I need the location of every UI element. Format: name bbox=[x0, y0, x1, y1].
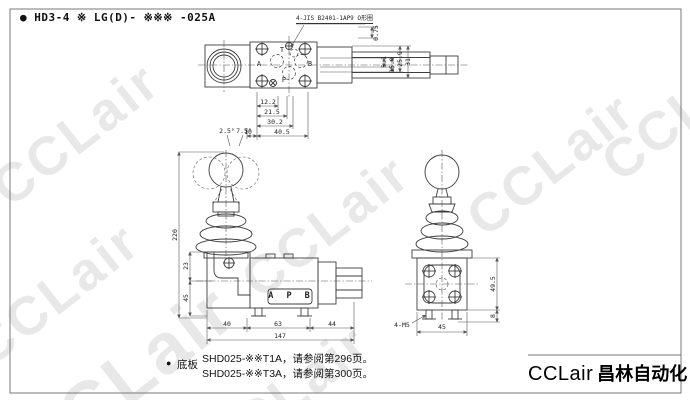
page-title: ● HD3-4 ※ LG(D)- ※※※ -025A bbox=[20, 11, 216, 24]
dim-147: 147 bbox=[274, 332, 286, 340]
port-label-t: T bbox=[280, 46, 284, 54]
page-border bbox=[10, 9, 681, 393]
port-label-a: A bbox=[257, 60, 261, 68]
logo-chinese: 昌林自动化 bbox=[597, 364, 687, 384]
dim-40-5: 40.5 bbox=[274, 128, 290, 136]
dim-12-2: 12.2 bbox=[260, 98, 276, 106]
dim-40: 40 bbox=[223, 320, 231, 328]
footer-baseplate-label: 底板 bbox=[177, 357, 198, 372]
dim-45-left: 45 bbox=[182, 294, 190, 302]
dim-5-1: 5.1 bbox=[380, 56, 388, 68]
dim-49-5: 49.5 bbox=[489, 276, 497, 292]
company-logo: CCLair昌林自动化 bbox=[528, 360, 678, 386]
dim-63: 63 bbox=[274, 320, 282, 328]
dim-25-9: 25.9 bbox=[396, 51, 404, 67]
dim-0-75: 0.75 bbox=[372, 25, 380, 41]
dim-30-2: 30.2 bbox=[267, 118, 283, 126]
logo-latin: CCLair bbox=[528, 363, 593, 385]
catalog-page: CCLair CCLair CCLair CCLair CCLair CCLai… bbox=[0, 0, 690, 400]
footer-note-line2: SHD025-※※T3A，请参阅第300页。 bbox=[202, 366, 373, 381]
dim-44: 44 bbox=[328, 320, 336, 328]
dim-23: 23 bbox=[182, 262, 190, 270]
ports-stamp-apb: A P B bbox=[268, 291, 314, 301]
front-view-dimension-lines bbox=[179, 152, 354, 344]
front-view-body bbox=[207, 252, 362, 316]
dim-8: 8 bbox=[489, 314, 497, 318]
footer-note-line1: SHD025-※※T1A，请参阅第296页。 bbox=[202, 351, 373, 366]
footer-bullet: ● bbox=[166, 358, 171, 368]
dim-45-bottom: 45 bbox=[438, 323, 446, 331]
screw-callout-4m5: 4-M5 bbox=[394, 321, 410, 329]
oring-callout-label: 4-JIS B2401-1AP9 O形圈 bbox=[296, 13, 373, 24]
port-label-b: B bbox=[308, 60, 312, 68]
technical-drawing bbox=[0, 0, 690, 400]
dim-31: 31 bbox=[404, 58, 412, 66]
dim-15-9: 15.9 bbox=[388, 57, 396, 73]
dim-21-5: 21.5 bbox=[264, 108, 280, 116]
dim-220: 220 bbox=[171, 229, 179, 241]
port-label-p: P bbox=[282, 76, 286, 84]
front-view-centerline bbox=[196, 150, 372, 281]
dim-10: 10 bbox=[244, 128, 252, 136]
dim-angle-2-5: 2.5° bbox=[219, 127, 235, 135]
